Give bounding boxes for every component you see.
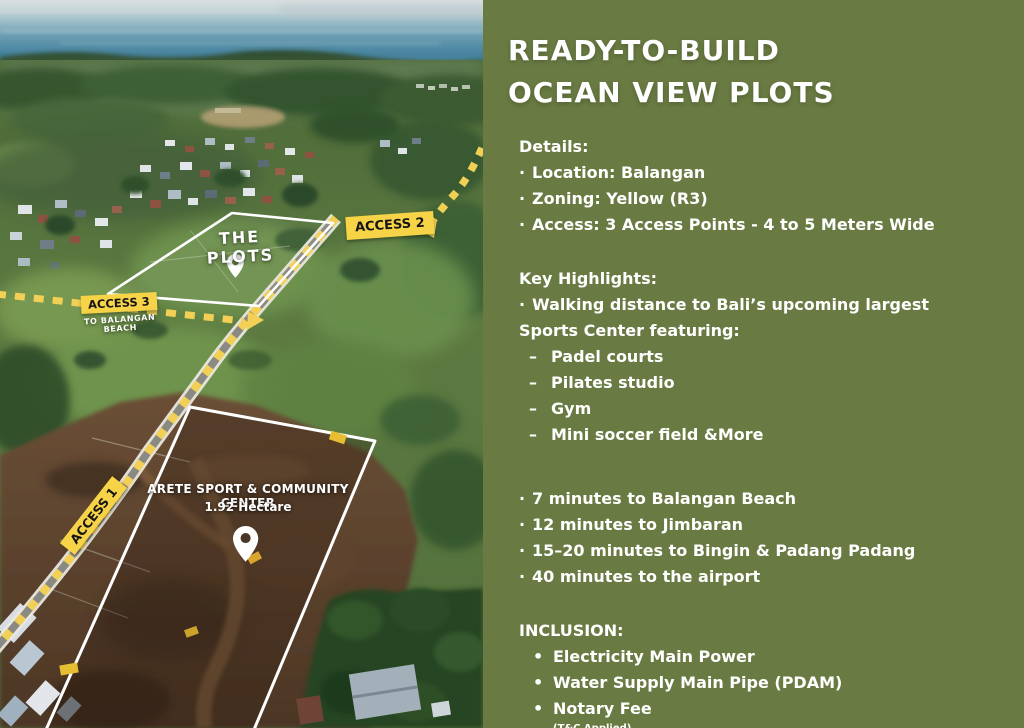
distance-item: · 12 minutes to Jimbaran <box>519 512 1002 538</box>
title-line-1: READY-TO-BUILD <box>508 30 1002 72</box>
distances-section: · 7 minutes to Balangan Beach · 12 minut… <box>508 486 1002 590</box>
title-line-2: OCEAN VIEW PLOTS <box>508 72 1002 114</box>
highlight-sub-item: – Gym <box>529 396 1002 422</box>
highlight-intro-line2: Sports Center featuring: <box>519 318 1002 344</box>
bullet-marker: • <box>533 670 553 696</box>
highlight-text: Walking distance to Bali’s upcoming larg… <box>532 292 929 318</box>
highlight-sub-text: Gym <box>551 396 591 422</box>
endash-marker: – <box>529 396 551 422</box>
bullet-marker: • <box>533 696 553 722</box>
detail-item-access: · Access: 3 Access Points - 4 to 5 Meter… <box>519 212 1002 238</box>
highlight-intro-line1: · Walking distance to Bali’s upcoming la… <box>519 292 1002 318</box>
inclusion-item: • Water Supply Main Pipe (PDAM) <box>533 670 1002 696</box>
highlight-sub-item: – Pilates studio <box>529 370 1002 396</box>
inclusion-text: Notary Fee <box>553 696 652 722</box>
endash-marker: – <box>529 370 551 396</box>
inclusion-text: Water Supply Main Pipe (PDAM) <box>553 670 842 696</box>
bullet-marker: • <box>533 644 553 670</box>
middot-marker: · <box>519 186 532 212</box>
detail-text: Access: 3 Access Points - 4 to 5 Meters … <box>532 212 935 238</box>
key-highlights-section: Key Highlights: · Walking distance to Ba… <box>508 266 1002 448</box>
highlights-heading: Key Highlights: <box>519 266 1002 292</box>
arete-area: 1.92 Hectare <box>126 500 370 514</box>
middot-marker: · <box>519 564 532 590</box>
distance-item: · 7 minutes to Balangan Beach <box>519 486 1002 512</box>
distance-item: · 40 minutes to the airport <box>519 564 1002 590</box>
terms-note: (T&C Applied) <box>553 722 1002 728</box>
inclusion-item: • Electricity Main Power <box>533 644 1002 670</box>
inclusion-text: Electricity Main Power <box>553 644 755 670</box>
middot-marker: · <box>519 538 532 564</box>
highlight-sub-text: Mini soccer field &More <box>551 422 763 448</box>
details-section: Details: · Location: Balangan · Zoning: … <box>508 134 1002 238</box>
aerial-photo: THE PLOTS ACCESS 2 ACCESS 3 TO BALANGAN … <box>0 0 483 728</box>
detail-item-location: · Location: Balangan <box>519 160 1002 186</box>
middot-marker: · <box>519 292 532 318</box>
distance-text: 15–20 minutes to Bingin & Padang Padang <box>532 538 915 564</box>
aerial-photo-art <box>0 0 483 728</box>
distance-text: 40 minutes to the airport <box>532 564 760 590</box>
info-panel: READY-TO-BUILD OCEAN VIEW PLOTS Details:… <box>483 0 1024 728</box>
highlight-sub-text: Padel courts <box>551 344 663 370</box>
middot-marker: · <box>519 160 532 186</box>
distance-item: · 15–20 minutes to Bingin & Padang Padan… <box>519 538 1002 564</box>
plots-label: THE PLOTS <box>182 225 298 269</box>
highlight-sub-text: Pilates studio <box>551 370 675 396</box>
inclusion-section: INCLUSION: • Electricity Main Power • Wa… <box>508 618 1002 728</box>
distance-text: 12 minutes to Jimbaran <box>532 512 743 538</box>
endash-marker: – <box>529 422 551 448</box>
highlight-sub-item: – Mini soccer field &More <box>529 422 1002 448</box>
middot-marker: · <box>519 486 532 512</box>
detail-text: Zoning: Yellow (R3) <box>532 186 708 212</box>
distance-text: 7 minutes to Balangan Beach <box>532 486 796 512</box>
details-heading: Details: <box>519 134 1002 160</box>
detail-item-zoning: · Zoning: Yellow (R3) <box>519 186 1002 212</box>
detail-text: Location: Balangan <box>532 160 705 186</box>
real-estate-flyer: THE PLOTS ACCESS 2 ACCESS 3 TO BALANGAN … <box>0 0 1024 728</box>
middot-marker: · <box>519 212 532 238</box>
inclusion-heading: INCLUSION: <box>519 618 1002 644</box>
page-title: READY-TO-BUILD OCEAN VIEW PLOTS <box>508 30 1002 114</box>
middot-marker: · <box>519 512 532 538</box>
highlight-sub-item: – Padel courts <box>529 344 1002 370</box>
inclusion-item: • Notary Fee <box>533 696 1002 722</box>
endash-marker: – <box>529 344 551 370</box>
